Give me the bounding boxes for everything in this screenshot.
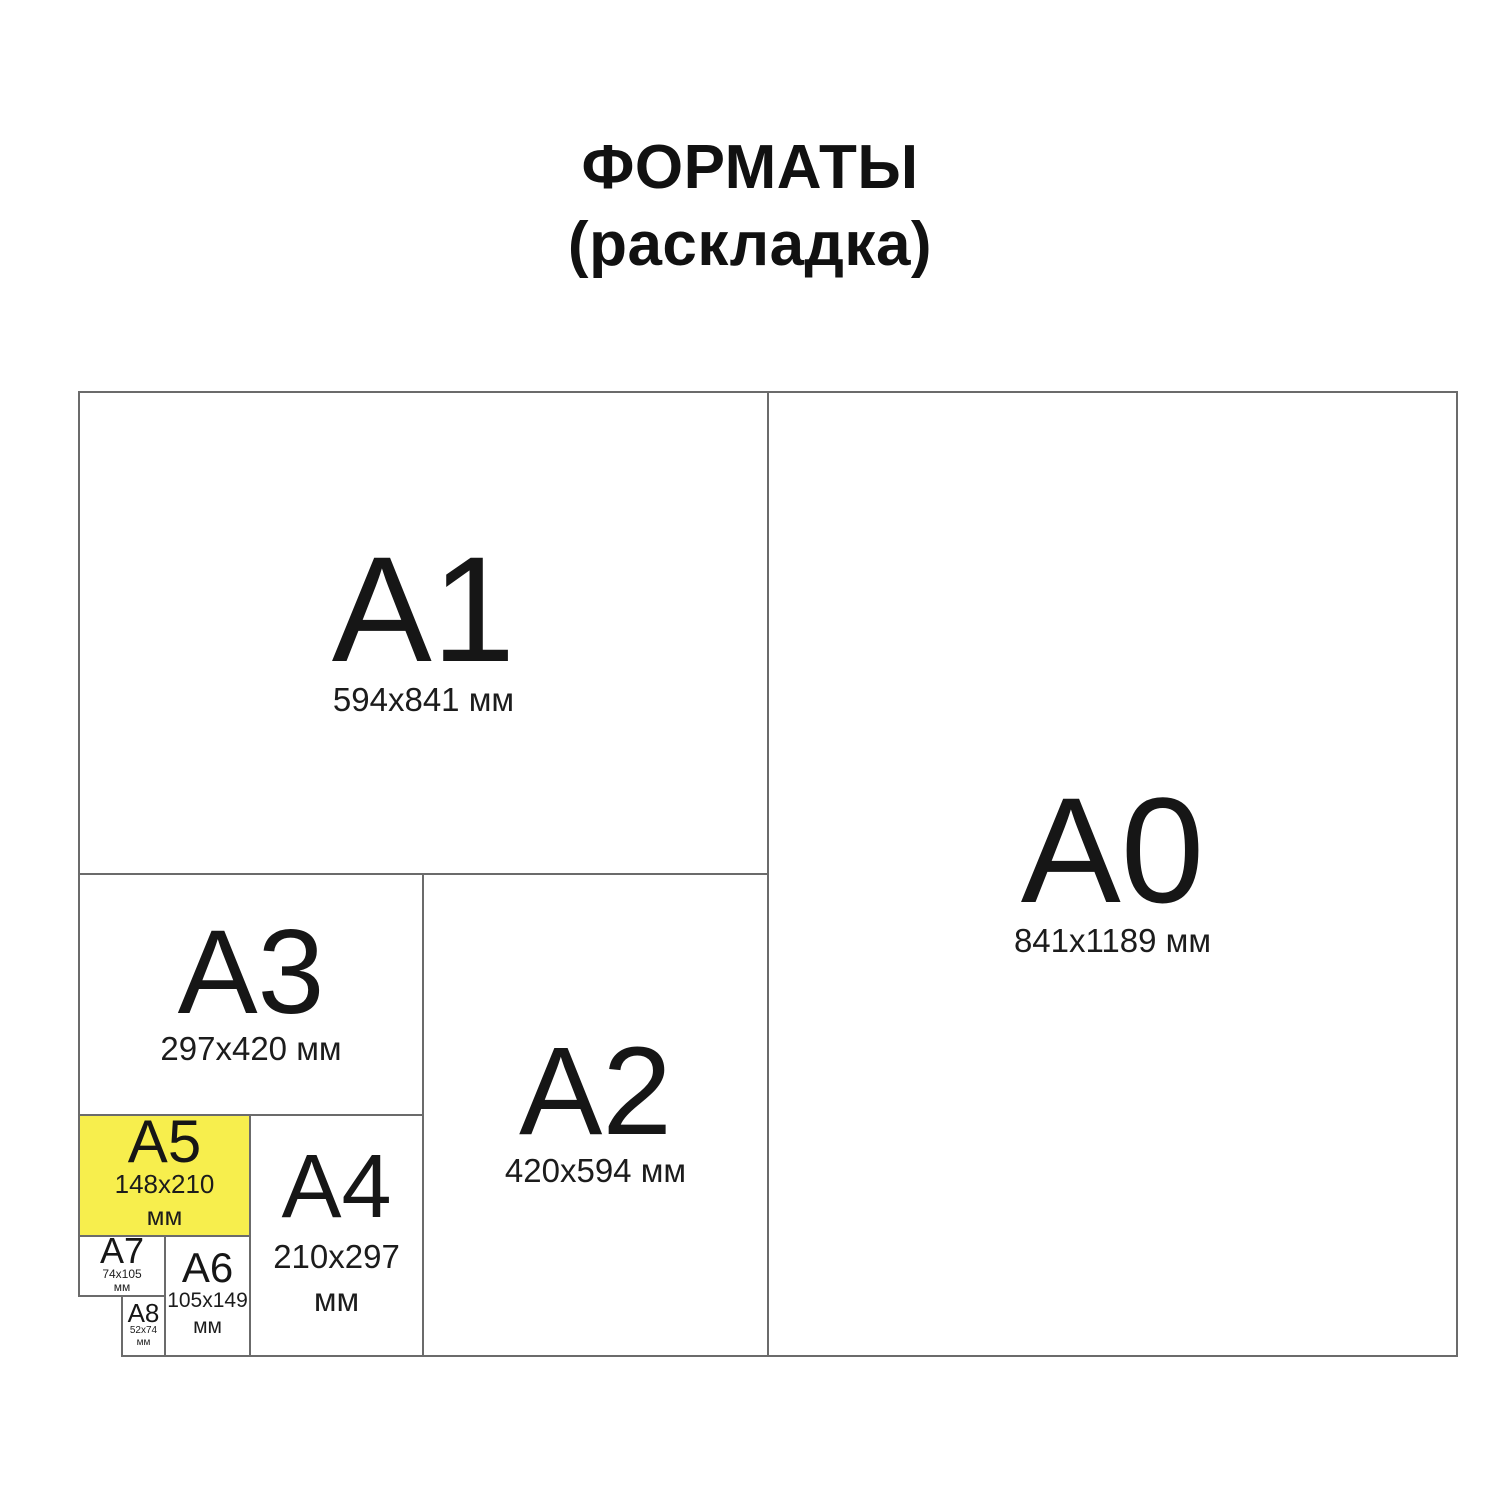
format-dims-unit-a6: мм (193, 1314, 222, 1340)
format-region-a2: А2 420x594 мм (423, 874, 768, 1357)
format-label-a6: А6 (182, 1251, 233, 1285)
format-dims-a7: 74x105 (102, 1268, 141, 1282)
format-region-a1: А1 594x841 мм (78, 391, 768, 874)
format-label-a3: А3 (178, 921, 325, 1023)
format-dims-a3: 297x420 мм (160, 1029, 341, 1069)
format-region-a0: А0 841x1189 мм (768, 391, 1458, 1357)
format-region-a3: А3 297x420 мм (78, 874, 423, 1115)
format-label-a4: А4 (281, 1149, 391, 1226)
format-region-a7: А7 74x105 мм (78, 1236, 165, 1297)
format-label-a1: А1 (332, 546, 515, 674)
paper-formats-diagram: А1 594x841 мм А0 841x1189 мм А3 297x420 … (78, 391, 1458, 1357)
format-dims-a5: 148x210 (115, 1169, 215, 1201)
format-label-a0: А0 (1021, 787, 1204, 915)
format-dims-a0: 841x1189 мм (1014, 921, 1211, 961)
title-line-2: (раскладка) (0, 207, 1500, 284)
format-dims-unit-a8: мм (137, 1337, 151, 1349)
format-dims-a8: 52x74 (130, 1325, 157, 1337)
format-dims-a2: 420x594 мм (505, 1151, 686, 1191)
format-region-a6: А6 105x149 мм (165, 1236, 250, 1357)
format-region-a5-highlighted: А5 148x210 мм (78, 1115, 250, 1236)
format-dims-unit-a5: мм (147, 1201, 183, 1233)
page-title: ФОРМАТЫ (раскладка) (0, 130, 1500, 284)
format-region-a8: А8 52x74 мм (121, 1296, 165, 1357)
format-dims-a4: 210x297 (273, 1236, 400, 1279)
format-region-a4: А4 210x297 мм (250, 1115, 423, 1357)
format-label-a2: А2 (519, 1039, 672, 1145)
format-label-a5: А5 (128, 1118, 201, 1166)
format-dims-a6: 105x149 (167, 1288, 248, 1314)
format-dims-a1: 594x841 мм (333, 680, 514, 720)
format-dims-unit-a4: мм (314, 1279, 359, 1322)
format-label-a8: А8 (128, 1303, 160, 1324)
format-label-a7: А7 (100, 1237, 144, 1266)
page: ФОРМАТЫ (раскладка) А1 594x841 мм А0 841… (0, 0, 1500, 1500)
format-dims-unit-a7: мм (114, 1281, 131, 1295)
title-line-1: ФОРМАТЫ (0, 130, 1500, 207)
